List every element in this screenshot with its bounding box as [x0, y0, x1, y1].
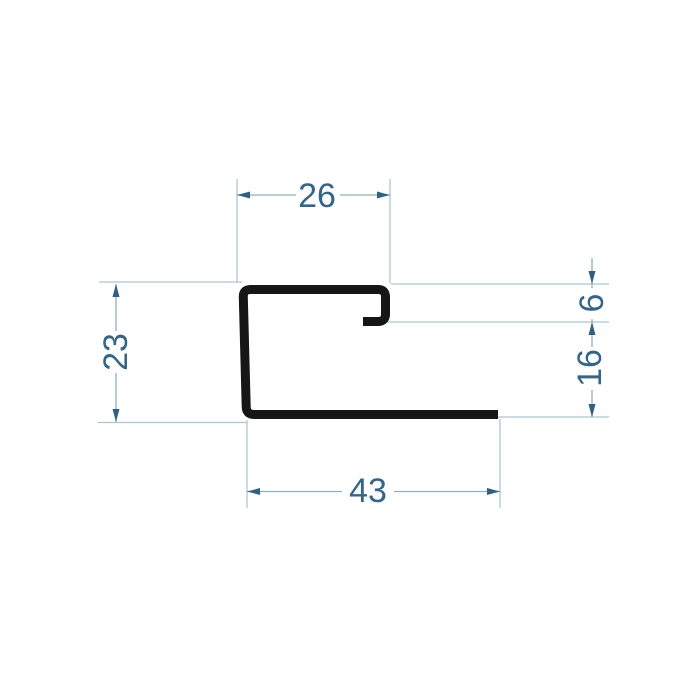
arrow-right-lower-top-icon: [589, 322, 596, 335]
arrow-bottom-width-left-icon: [247, 488, 260, 495]
dimension-labels: 26 23 6 16 43: [97, 177, 611, 510]
arrow-left-height-top-icon: [113, 284, 120, 297]
dimension-label-left-height: 23: [97, 333, 135, 371]
dimension-label-bottom-width: 43: [349, 472, 387, 510]
profile-dimension-drawing: 26 23 6 16 43: [0, 0, 700, 700]
arrow-hook-depth-top-icon: [589, 271, 596, 284]
dimension-label-right-lower-height: 16: [571, 349, 609, 387]
arrow-top-width-right-icon: [377, 192, 390, 199]
technical-drawing-canvas: 26 23 6 16 43: [0, 0, 700, 700]
dimension-label-hook-depth: 6: [573, 294, 611, 313]
extension-lines: [98, 179, 609, 508]
profile-cross-section-path: [243, 290, 498, 415]
dimension-lines: [116, 195, 592, 492]
arrow-top-width-left-icon: [237, 192, 250, 199]
dimension-label-top-width: 26: [298, 177, 336, 215]
arrow-bottom-width-right-icon: [487, 488, 500, 495]
dimension-arrowheads: [113, 192, 596, 496]
arrow-left-height-bottom-icon: [113, 409, 120, 422]
arrow-right-lower-bottom-icon: [589, 404, 596, 417]
profile-outline: [243, 290, 498, 415]
label-masks: [98, 179, 609, 508]
